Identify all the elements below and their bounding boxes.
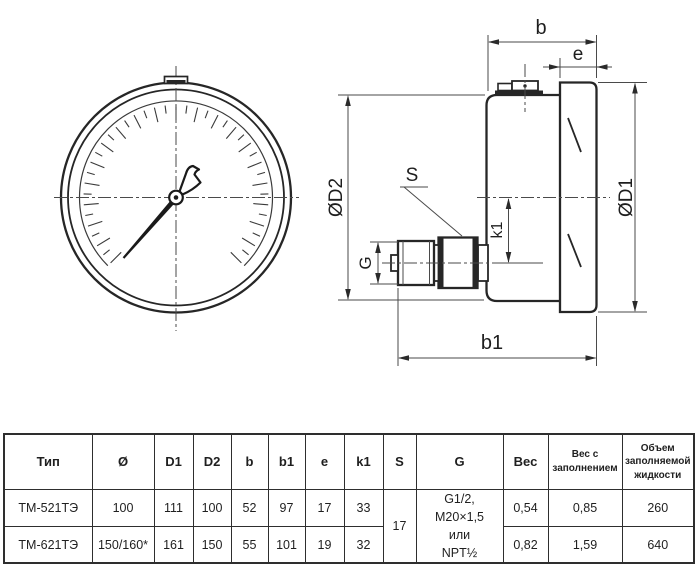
technical-drawing: b e b1 S ØD2 ØD1 G k1 — [0, 0, 700, 432]
cell-e: 17 — [305, 489, 344, 527]
dim-label-k1: k1 — [489, 221, 506, 238]
cell-type: ТМ-621ТЭ — [4, 527, 92, 564]
header-e: e — [305, 434, 344, 489]
fill-valve-tab — [498, 84, 512, 91]
table-row: ТМ-621ТЭ 150/160* 161 150 55 101 19 32 0… — [4, 527, 694, 564]
g-line: M20×1,5 — [419, 508, 501, 526]
cell-volume: 260 — [622, 489, 694, 527]
dim-label-b1: b1 — [481, 332, 503, 354]
needle-hub-dot — [174, 195, 179, 200]
s-leader-line — [400, 187, 462, 236]
g-line: или — [419, 526, 501, 544]
header-dia: Ø — [92, 434, 154, 489]
needle-counterweight-tail — [180, 166, 201, 195]
header-weight: Вес — [503, 434, 548, 489]
cell-k1: 32 — [344, 527, 383, 564]
fill-valve-base-plate — [495, 91, 543, 97]
table-row: ТМ-521ТЭ 100 111 100 52 97 17 33 17 G1/2… — [4, 489, 694, 527]
dim-label-b: b — [535, 17, 546, 39]
dim-label-g: G — [356, 256, 375, 269]
cell-b1: 101 — [268, 527, 305, 564]
cell-b: 55 — [231, 527, 268, 564]
header-type: Тип — [4, 434, 92, 489]
header-k1: k1 — [344, 434, 383, 489]
cell-weight-filled: 1,59 — [548, 527, 622, 564]
cell-dia: 100 — [92, 489, 154, 527]
header-b: b — [231, 434, 268, 489]
cell-s-merged: 17 — [383, 489, 416, 563]
needle — [123, 196, 178, 258]
case-top-lug-base — [167, 80, 186, 84]
cell-type: ТМ-521ТЭ — [4, 489, 92, 527]
header-volume: Объем заполняемой жидкости — [622, 434, 694, 489]
cell-d1: 161 — [154, 527, 193, 564]
dim-label-s: S — [406, 165, 419, 186]
header-d2: D2 — [193, 434, 231, 489]
header-g: G — [416, 434, 503, 489]
dim-label-e: e — [573, 44, 584, 65]
header-weight-filled: Вес с заполнением — [548, 434, 622, 489]
front-view — [54, 66, 299, 331]
cell-g-merged: G1/2, M20×1,5 или NPT½ — [416, 489, 503, 563]
header-d1: D1 — [154, 434, 193, 489]
cell-weight-filled: 0,85 — [548, 489, 622, 527]
cell-d2: 150 — [193, 527, 231, 564]
header-b1: b1 — [268, 434, 305, 489]
dim-label-d2: ØD2 — [326, 178, 347, 217]
gauge-datasheet-page: b e b1 S ØD2 ØD1 G k1 Тип Ø D1 D2 b b1 — [0, 0, 700, 571]
cell-e: 19 — [305, 527, 344, 564]
g-line: NPT½ — [419, 544, 501, 562]
cell-volume: 640 — [622, 527, 694, 564]
table-header-row: Тип Ø D1 D2 b b1 e k1 S G Вес Вес с запо… — [4, 434, 694, 489]
side-view — [382, 64, 610, 312]
cell-k1: 33 — [344, 489, 383, 527]
dimensions-table: Тип Ø D1 D2 b b1 e k1 S G Вес Вес с запо… — [3, 433, 695, 564]
cell-dia: 150/160* — [92, 527, 154, 564]
cell-b1: 97 — [268, 489, 305, 527]
cell-d2: 100 — [193, 489, 231, 527]
header-s: S — [383, 434, 416, 489]
cell-b: 52 — [231, 489, 268, 527]
cell-weight: 0,54 — [503, 489, 548, 527]
cell-d1: 111 — [154, 489, 193, 527]
dim-label-d1: ØD1 — [616, 178, 637, 217]
g-line: G1/2, — [419, 490, 501, 508]
cell-weight: 0,82 — [503, 527, 548, 564]
